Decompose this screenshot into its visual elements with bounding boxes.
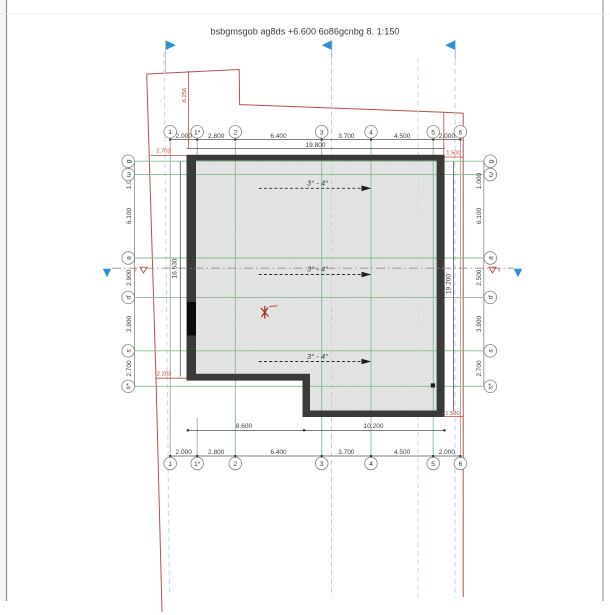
svg-text:3° - 4°: 3° - 4° (307, 179, 328, 188)
svg-text:6.400: 6.400 (270, 133, 287, 140)
svg-text:2.000: 2.000 (176, 449, 193, 456)
svg-text:3.700: 3.700 (338, 133, 355, 140)
svg-text:16.530: 16.530 (172, 258, 179, 278)
svg-text:2.700: 2.700 (476, 360, 483, 377)
svg-text:6: 6 (459, 130, 463, 137)
svg-text:4: 4 (369, 130, 373, 137)
svg-text:8.600: 8.600 (236, 423, 253, 430)
svg-text:19.200: 19.200 (446, 274, 453, 294)
svg-text:2: 2 (233, 461, 237, 468)
svg-text:2: 2 (233, 130, 237, 137)
svg-text:1: 1 (168, 129, 172, 136)
svg-text:3: 3 (320, 130, 324, 137)
svg-text:1.500: 1.500 (445, 411, 460, 417)
svg-text:5: 5 (431, 461, 435, 468)
svg-text:1: 1 (168, 461, 172, 468)
svg-text:6.100: 6.100 (126, 207, 133, 224)
svg-text:3: 3 (320, 461, 324, 468)
svg-text:2.000: 2.000 (439, 133, 456, 140)
svg-text:2.800: 2.800 (208, 133, 225, 140)
svg-text:2.703: 2.703 (156, 149, 171, 155)
svg-text:3° - 4°: 3° - 4° (307, 265, 328, 274)
svg-text:2.700: 2.700 (126, 360, 133, 377)
svg-text:5: 5 (431, 130, 435, 137)
svg-text:2.203: 2.203 (157, 371, 172, 377)
svg-text:3° - 4°: 3° - 4° (307, 352, 328, 361)
svg-text:2.500: 2.500 (476, 269, 483, 286)
svg-text:3.900: 3.900 (476, 315, 483, 332)
svg-text:1*: 1* (194, 461, 201, 468)
svg-text:1*: 1* (194, 130, 201, 137)
svg-text:4: 4 (369, 461, 373, 468)
svg-text:6.256: 6.256 (182, 88, 188, 103)
svg-text:6: 6 (459, 461, 463, 468)
svg-text:2.000: 2.000 (439, 449, 456, 456)
svg-text:2.900: 2.900 (126, 269, 133, 286)
svg-text:3.900: 3.900 (126, 315, 133, 332)
svg-text:bsbgmsgob ag8ds +6.600 6o86: bsbgmsgob ag8ds +6.600 6o86gcnbg 8. 1:15… (211, 27, 400, 38)
svg-text:3.700: 3.700 (338, 449, 355, 456)
svg-text:19.800: 19.800 (306, 142, 326, 149)
svg-text:6.100: 6.100 (476, 207, 483, 224)
svg-text:2.800: 2.800 (208, 449, 225, 456)
svg-text:1.500: 1.500 (446, 151, 461, 157)
svg-text:4.500: 4.500 (394, 133, 411, 140)
svg-text:10.200: 10.200 (364, 423, 384, 430)
svg-text:2.000: 2.000 (176, 133, 193, 140)
svg-text:6.400: 6.400 (270, 449, 287, 456)
svg-text:4.500: 4.500 (394, 449, 411, 456)
svg-text:1.000: 1.000 (476, 172, 483, 189)
